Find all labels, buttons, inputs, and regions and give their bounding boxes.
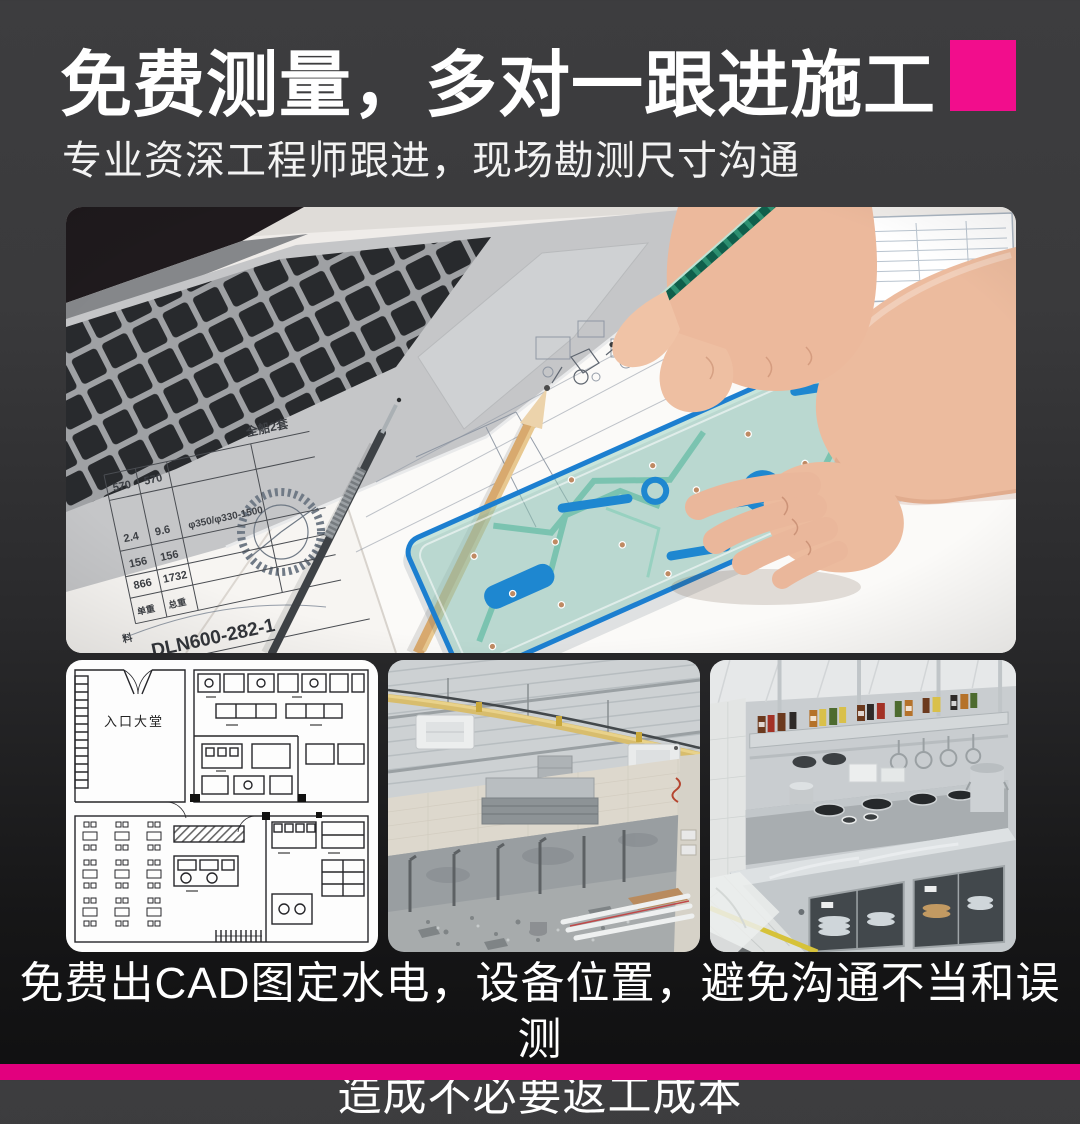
commercial-kitchen-illustration: [710, 660, 1016, 952]
gallery-photo-cad-plan: 入口大堂: [66, 660, 378, 952]
page-subtitle: 专业资深工程师跟进，现场勘测尺寸沟通: [62, 128, 962, 186]
hero-photo-illustration: 570 570 2.4 9.6 φ350/φ330-1500 156 156 8…: [66, 207, 1016, 653]
gallery-photo-construction-site: [388, 660, 700, 952]
bottom-accent-bar: [0, 1064, 1080, 1080]
construction-site-illustration: [388, 660, 700, 952]
footer-text: 免费出CAD图定水电，设备位置，避免沟通不当和误测 造成不必要返工成本: [0, 956, 1080, 1124]
footer-line-1: 免费出CAD图定水电，设备位置，避免沟通不当和误测: [0, 956, 1080, 1068]
cad-floor-plan-illustration: 入口大堂: [66, 660, 378, 952]
hero-photo-blueprint-desk: 570 570 2.4 9.6 φ350/φ330-1500 156 156 8…: [66, 207, 1016, 653]
accent-square: [950, 40, 1016, 111]
gallery-photo-commercial-kitchen: [710, 660, 1016, 952]
page-title: 免费测量，多对一跟进施工: [60, 26, 960, 131]
back-counter: [482, 778, 598, 824]
stock-pot: [970, 768, 1004, 812]
plan-hall-label: 入口大堂: [104, 714, 164, 729]
